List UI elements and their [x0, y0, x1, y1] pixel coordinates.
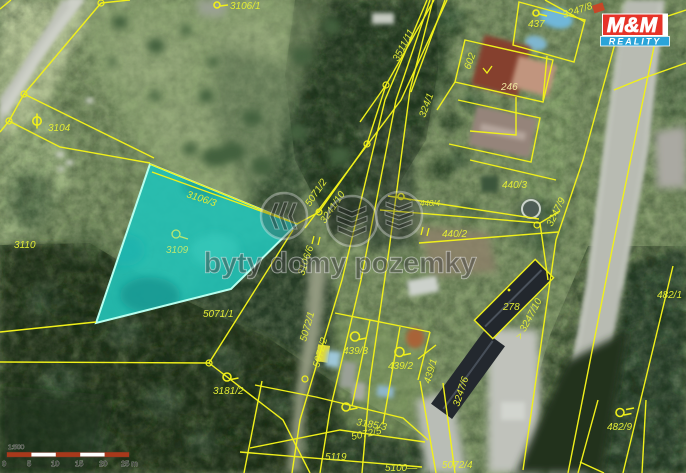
svg-text:482/9: 482/9: [607, 422, 632, 433]
svg-text:3181/2: 3181/2: [213, 386, 244, 397]
svg-text:5072/4: 5072/4: [442, 460, 473, 471]
svg-text:3110: 3110: [14, 240, 36, 251]
svg-text:5071/1: 5071/1: [203, 309, 234, 320]
svg-text:5100—: 5100—: [385, 463, 418, 473]
svg-text:3106/1: 3106/1: [230, 1, 261, 12]
svg-text:M&M: M&M: [607, 14, 658, 37]
svg-text:437: 437: [528, 19, 545, 30]
svg-text:0: 0: [2, 459, 6, 468]
svg-text:440/2: 440/2: [442, 229, 467, 240]
svg-text:1:500: 1:500: [8, 444, 25, 451]
svg-text:440/3: 440/3: [502, 180, 527, 191]
svg-text:3104: 3104: [48, 123, 71, 134]
svg-text:246: 246: [500, 82, 518, 93]
svg-text:15: 15: [75, 459, 83, 468]
svg-text:482/1: 482/1: [657, 290, 682, 301]
svg-text:byty domy pozemky: byty domy pozemky: [204, 248, 477, 280]
svg-text:5: 5: [27, 459, 31, 468]
svg-text:439/2: 439/2: [388, 361, 413, 372]
svg-text:5119: 5119: [325, 452, 347, 463]
svg-text:278: 278: [502, 302, 520, 313]
svg-text:10: 10: [51, 459, 59, 468]
svg-text:25 m: 25 m: [121, 459, 138, 468]
svg-text:440/4: 440/4: [420, 199, 441, 208]
svg-text:3109: 3109: [166, 245, 189, 256]
svg-text:20: 20: [99, 459, 107, 468]
svg-text:439/3: 439/3: [343, 346, 368, 357]
svg-text:REALITY: REALITY: [609, 36, 662, 46]
